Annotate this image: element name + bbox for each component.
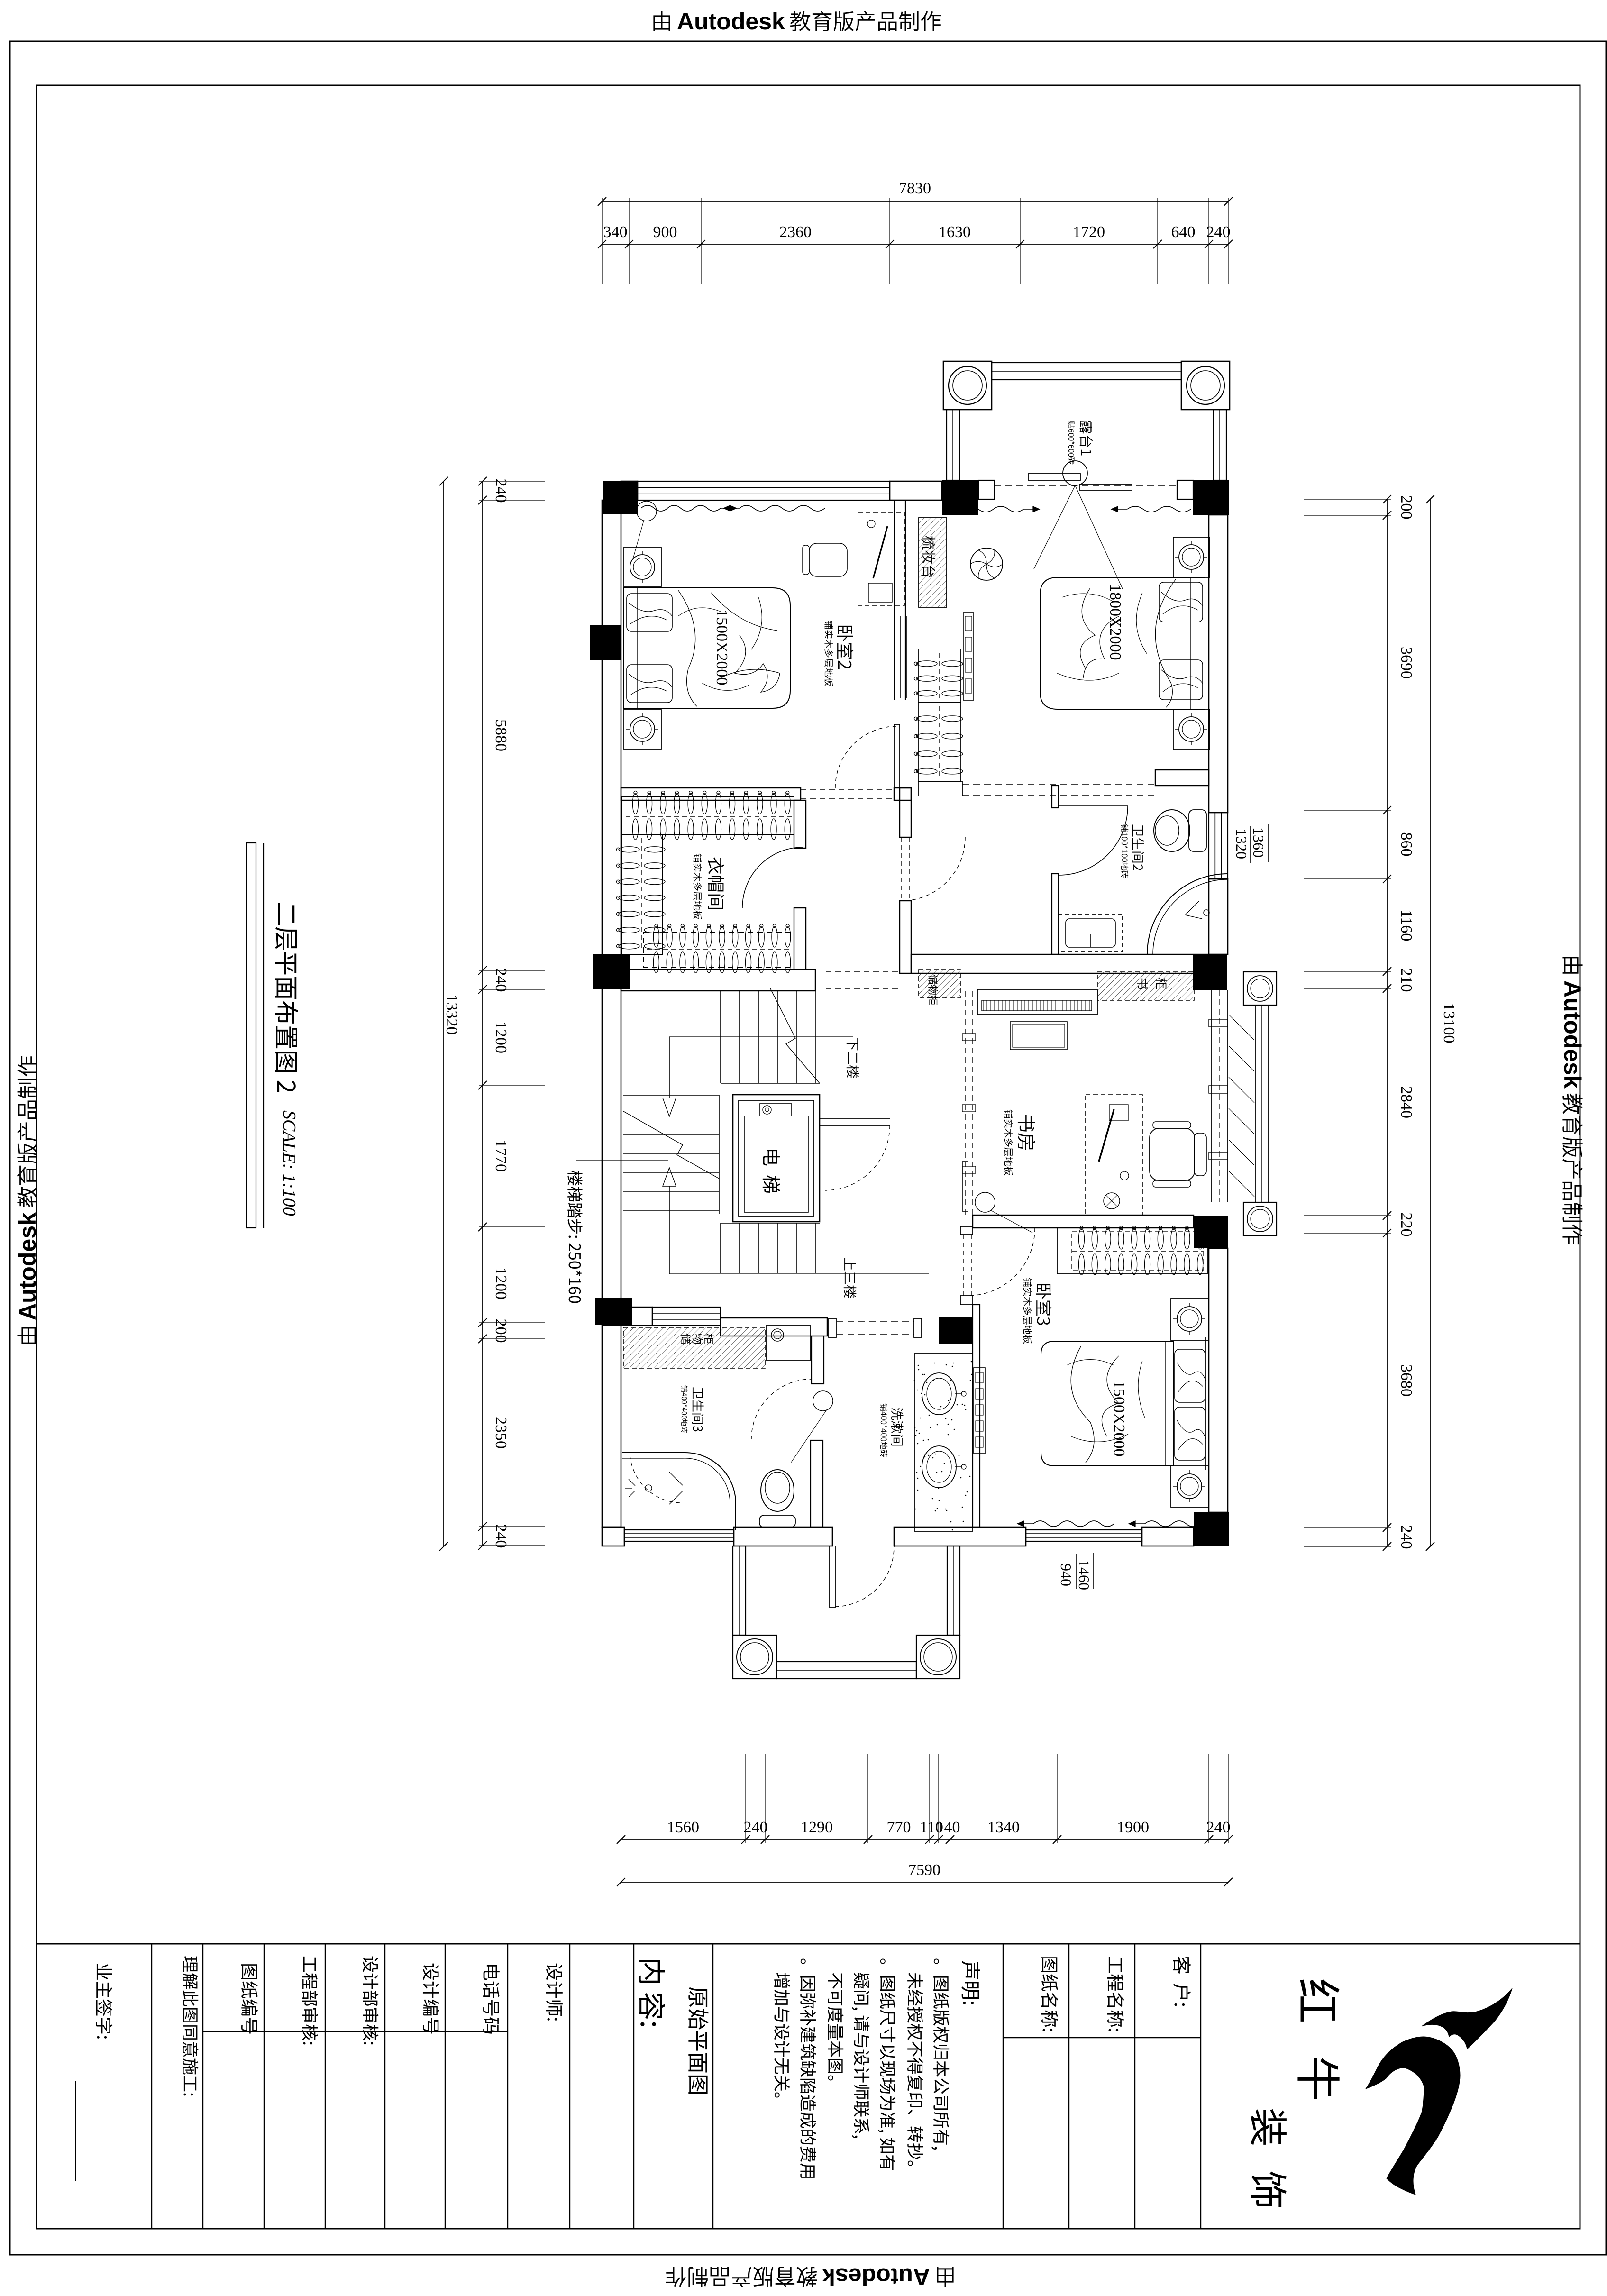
svg-text:1770: 1770 bbox=[492, 1140, 510, 1172]
svg-text:Autodesk: Autodesk bbox=[822, 2263, 930, 2290]
svg-text:1200: 1200 bbox=[492, 1267, 510, 1299]
svg-text:1720: 1720 bbox=[1073, 223, 1105, 241]
svg-text:200: 200 bbox=[1397, 495, 1415, 520]
svg-text:240: 240 bbox=[1206, 223, 1231, 241]
svg-text:240: 240 bbox=[1397, 1525, 1415, 1549]
svg-text:13320: 13320 bbox=[443, 995, 460, 1035]
svg-text:240: 240 bbox=[492, 1524, 510, 1548]
svg-text:2840: 2840 bbox=[1397, 1086, 1415, 1118]
svg-text:210: 210 bbox=[1397, 968, 1415, 992]
svg-text:770: 770 bbox=[887, 1819, 911, 1836]
svg-text:640: 640 bbox=[1171, 223, 1196, 241]
svg-text:1800X2000: 1800X2000 bbox=[1106, 584, 1124, 660]
svg-text:240: 240 bbox=[492, 968, 510, 992]
svg-text:200: 200 bbox=[492, 1319, 510, 1343]
svg-text:1460: 1460 bbox=[1076, 1560, 1093, 1590]
svg-text:1320: 1320 bbox=[1233, 829, 1250, 859]
svg-text:SCALE: 1:100: SCALE: 1:100 bbox=[279, 1110, 299, 1216]
svg-text:1500X2000: 1500X2000 bbox=[1110, 1381, 1128, 1457]
svg-text:1290: 1290 bbox=[801, 1819, 833, 1836]
svg-text:1900: 1900 bbox=[1117, 1819, 1149, 1836]
svg-text:1360: 1360 bbox=[1250, 827, 1267, 858]
svg-text:3690: 3690 bbox=[1397, 647, 1415, 679]
svg-text:2360: 2360 bbox=[779, 223, 812, 241]
svg-text:1500X2000: 1500X2000 bbox=[713, 609, 730, 686]
svg-text:860: 860 bbox=[1397, 832, 1415, 857]
svg-text:940: 940 bbox=[1058, 1564, 1075, 1586]
svg-text:240: 240 bbox=[492, 479, 510, 503]
svg-text:900: 900 bbox=[653, 223, 677, 241]
svg-text:3680: 3680 bbox=[1397, 1364, 1415, 1397]
svg-text:5880: 5880 bbox=[492, 719, 510, 751]
svg-text:7590: 7590 bbox=[908, 1861, 940, 1879]
svg-text:140: 140 bbox=[936, 1819, 960, 1836]
svg-text:Autodesk: Autodesk bbox=[1559, 980, 1586, 1089]
svg-text:13100: 13100 bbox=[1440, 1003, 1458, 1043]
svg-text:1200: 1200 bbox=[492, 1021, 510, 1053]
svg-text:Autodesk: Autodesk bbox=[677, 8, 785, 35]
svg-text:7830: 7830 bbox=[899, 180, 931, 197]
svg-text:2350: 2350 bbox=[492, 1417, 510, 1449]
svg-text:220: 220 bbox=[1397, 1213, 1415, 1237]
svg-text:1340: 1340 bbox=[987, 1819, 1020, 1836]
svg-text:1560: 1560 bbox=[667, 1819, 699, 1836]
svg-text:240: 240 bbox=[1206, 1819, 1231, 1836]
svg-text:1630: 1630 bbox=[939, 223, 971, 241]
svg-text:1160: 1160 bbox=[1397, 910, 1415, 942]
svg-text:240: 240 bbox=[744, 1819, 768, 1836]
svg-text:340: 340 bbox=[603, 223, 628, 241]
